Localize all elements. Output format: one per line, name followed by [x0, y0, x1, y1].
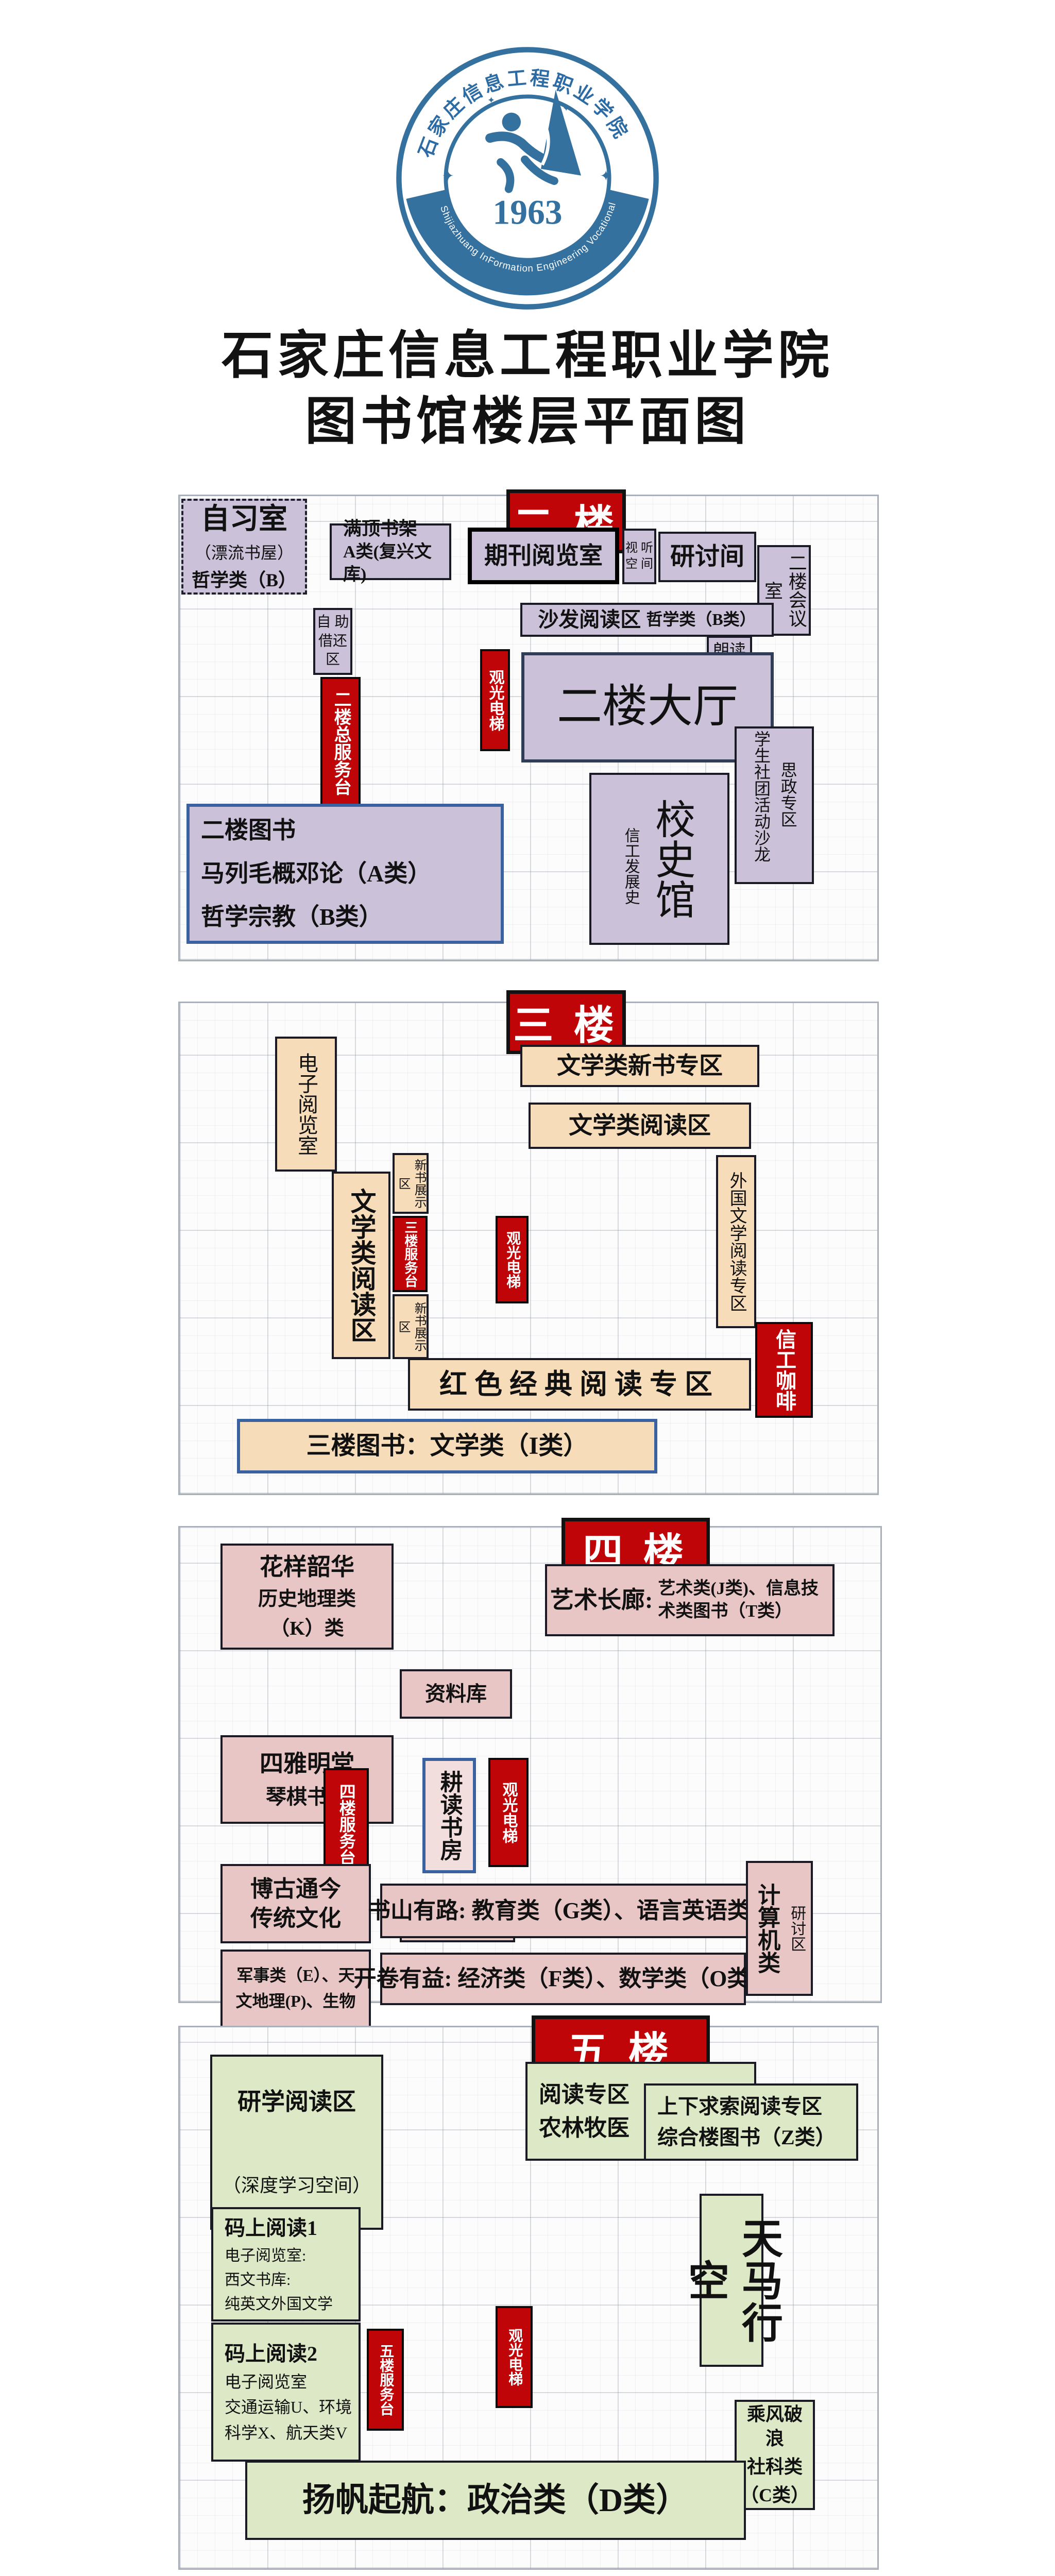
- area-tianma-xingkong-zone: 天马行空: [700, 2194, 763, 2367]
- area-self-checkout-zone: 自 助 借还区: [313, 608, 352, 675]
- sparkle-icon: ✦: [442, 168, 454, 184]
- area-floor3-books-categories: 三楼图书：文学类（I类）: [237, 1419, 657, 1473]
- area-farming-reading-study: 耕读书房: [422, 1758, 476, 1873]
- area-history-geography-zone: 花样韶华 历史地理类 （K）类: [220, 1544, 394, 1650]
- area-floor3-sightseeing-elevator: 观光电梯: [496, 1216, 529, 1303]
- sparkle-icon: ✦: [487, 95, 495, 105]
- area-archive-1: 资料库: [400, 1669, 512, 1719]
- area-literature-new-books-zone: 文学类新书专区: [520, 1045, 759, 1087]
- area-art-corridor: 艺术长廊: 艺术类(J类)、信息技术类图书（T类）: [545, 1564, 835, 1636]
- area-floor4-sightseeing-elevator: 观光电梯: [488, 1758, 529, 1867]
- area-floor2-sightseeing-elevator: 观光电梯: [480, 649, 510, 751]
- area-floor5-sightseeing-elevator: 观光电梯: [496, 2306, 533, 2408]
- area-literature-reading-zone-bar: 文学类阅读区: [529, 1103, 751, 1149]
- sparkle-icon: ✦: [600, 168, 612, 184]
- emblem-inner-ring: [446, 96, 609, 260]
- area-foreign-literature-zone: 外国文学阅读专区: [716, 1155, 756, 1328]
- area-e-reading-room: 电子阅览室: [275, 1037, 337, 1172]
- library-floorplan-poster: 石家庄信息工程职业学院 Shijiazhuang InFormation Eng…: [0, 0, 1055, 2576]
- area-periodical-reading-room: 期刊阅览室: [468, 528, 619, 584]
- area-new-book-display-1: 新书展示区: [393, 1153, 429, 1214]
- area-floor5-service-desk: 五楼服务台: [367, 2329, 404, 2431]
- area-xingong-coffee: 信工咖啡: [755, 1322, 813, 1418]
- emblem-year: 1963: [492, 193, 562, 231]
- area-school-history-hall: 信工发展史 校史馆: [589, 773, 729, 945]
- area-traditional-culture-zone: 博古通今 传统文化: [220, 1864, 371, 1943]
- area-economics-math-zone: 开卷有益: 经济类（F类）、数学类（O类）: [380, 1953, 746, 2005]
- area-military-astronomy-biology: 军事类（E）、天 文地理(P)、生物: [220, 1950, 371, 2028]
- area-sofa-reading-zone: 沙发阅读区 哲学类（B类）: [520, 603, 774, 637]
- area-audiovisual-space: 视 听 空 间: [622, 529, 656, 584]
- area-scan-reading-1: 码上阅读1 电子阅览室: 西文书库: 纯英文外国文学: [211, 2207, 361, 2321]
- area-education-language-zone: 书山有路: 教育类（G类）、语言英语类（H）: [380, 1884, 801, 1938]
- page-title-line1: 石家庄信息工程职业学院: [0, 313, 1055, 388]
- sparkle-icon: ✦: [563, 103, 570, 113]
- area-floor3-service-desk: 三楼服务台: [393, 1216, 428, 1292]
- area-floor2-books-categories: 二楼图书 马列毛概邓论（A类） 哲学宗教（B类）: [186, 804, 504, 944]
- area-self-study-room: 自习室 （漂流书屋） 哲学类（B）: [181, 499, 307, 595]
- college-emblem: 石家庄信息工程职业学院 Shijiazhuang InFormation Eng…: [394, 44, 661, 312]
- area-research-reading-zone: 研学阅读区 （深度学习空间）: [210, 2055, 383, 2230]
- area-student-club-salon: 学生社团活动沙龙 思政专区: [735, 726, 814, 884]
- area-comprehensive-books-zone: 上下求索阅读专区 综合楼图书（Z类）: [644, 2083, 858, 2161]
- page-title-line2: 图书馆楼层平面图: [0, 379, 1055, 454]
- area-social-science-zone: 乘风破浪 社科类 （C类）: [735, 2400, 815, 2510]
- area-politics-books-zone: 扬帆起航：政治类（D类）: [245, 2461, 746, 2540]
- area-scan-reading-2: 码上阅读2 电子阅览室 交通运输U、环境 科学X、航天类V: [211, 2323, 361, 2462]
- area-red-classics-reading-zone: 红色经典阅读专区: [408, 1358, 751, 1411]
- area-new-book-display-2: 新书展示区: [393, 1294, 429, 1359]
- area-floor2-main-service-desk: 二楼总服务台: [320, 677, 361, 809]
- area-literature-reading-zone-vertical: 文学类阅读区: [332, 1172, 390, 1359]
- area-computer-books-zone: 计算机类 研讨区: [746, 1861, 813, 1996]
- area-seminar-room: 研讨间: [658, 532, 756, 582]
- area-full-bookshelf: 满顶书架 A类(复兴文库): [330, 523, 451, 580]
